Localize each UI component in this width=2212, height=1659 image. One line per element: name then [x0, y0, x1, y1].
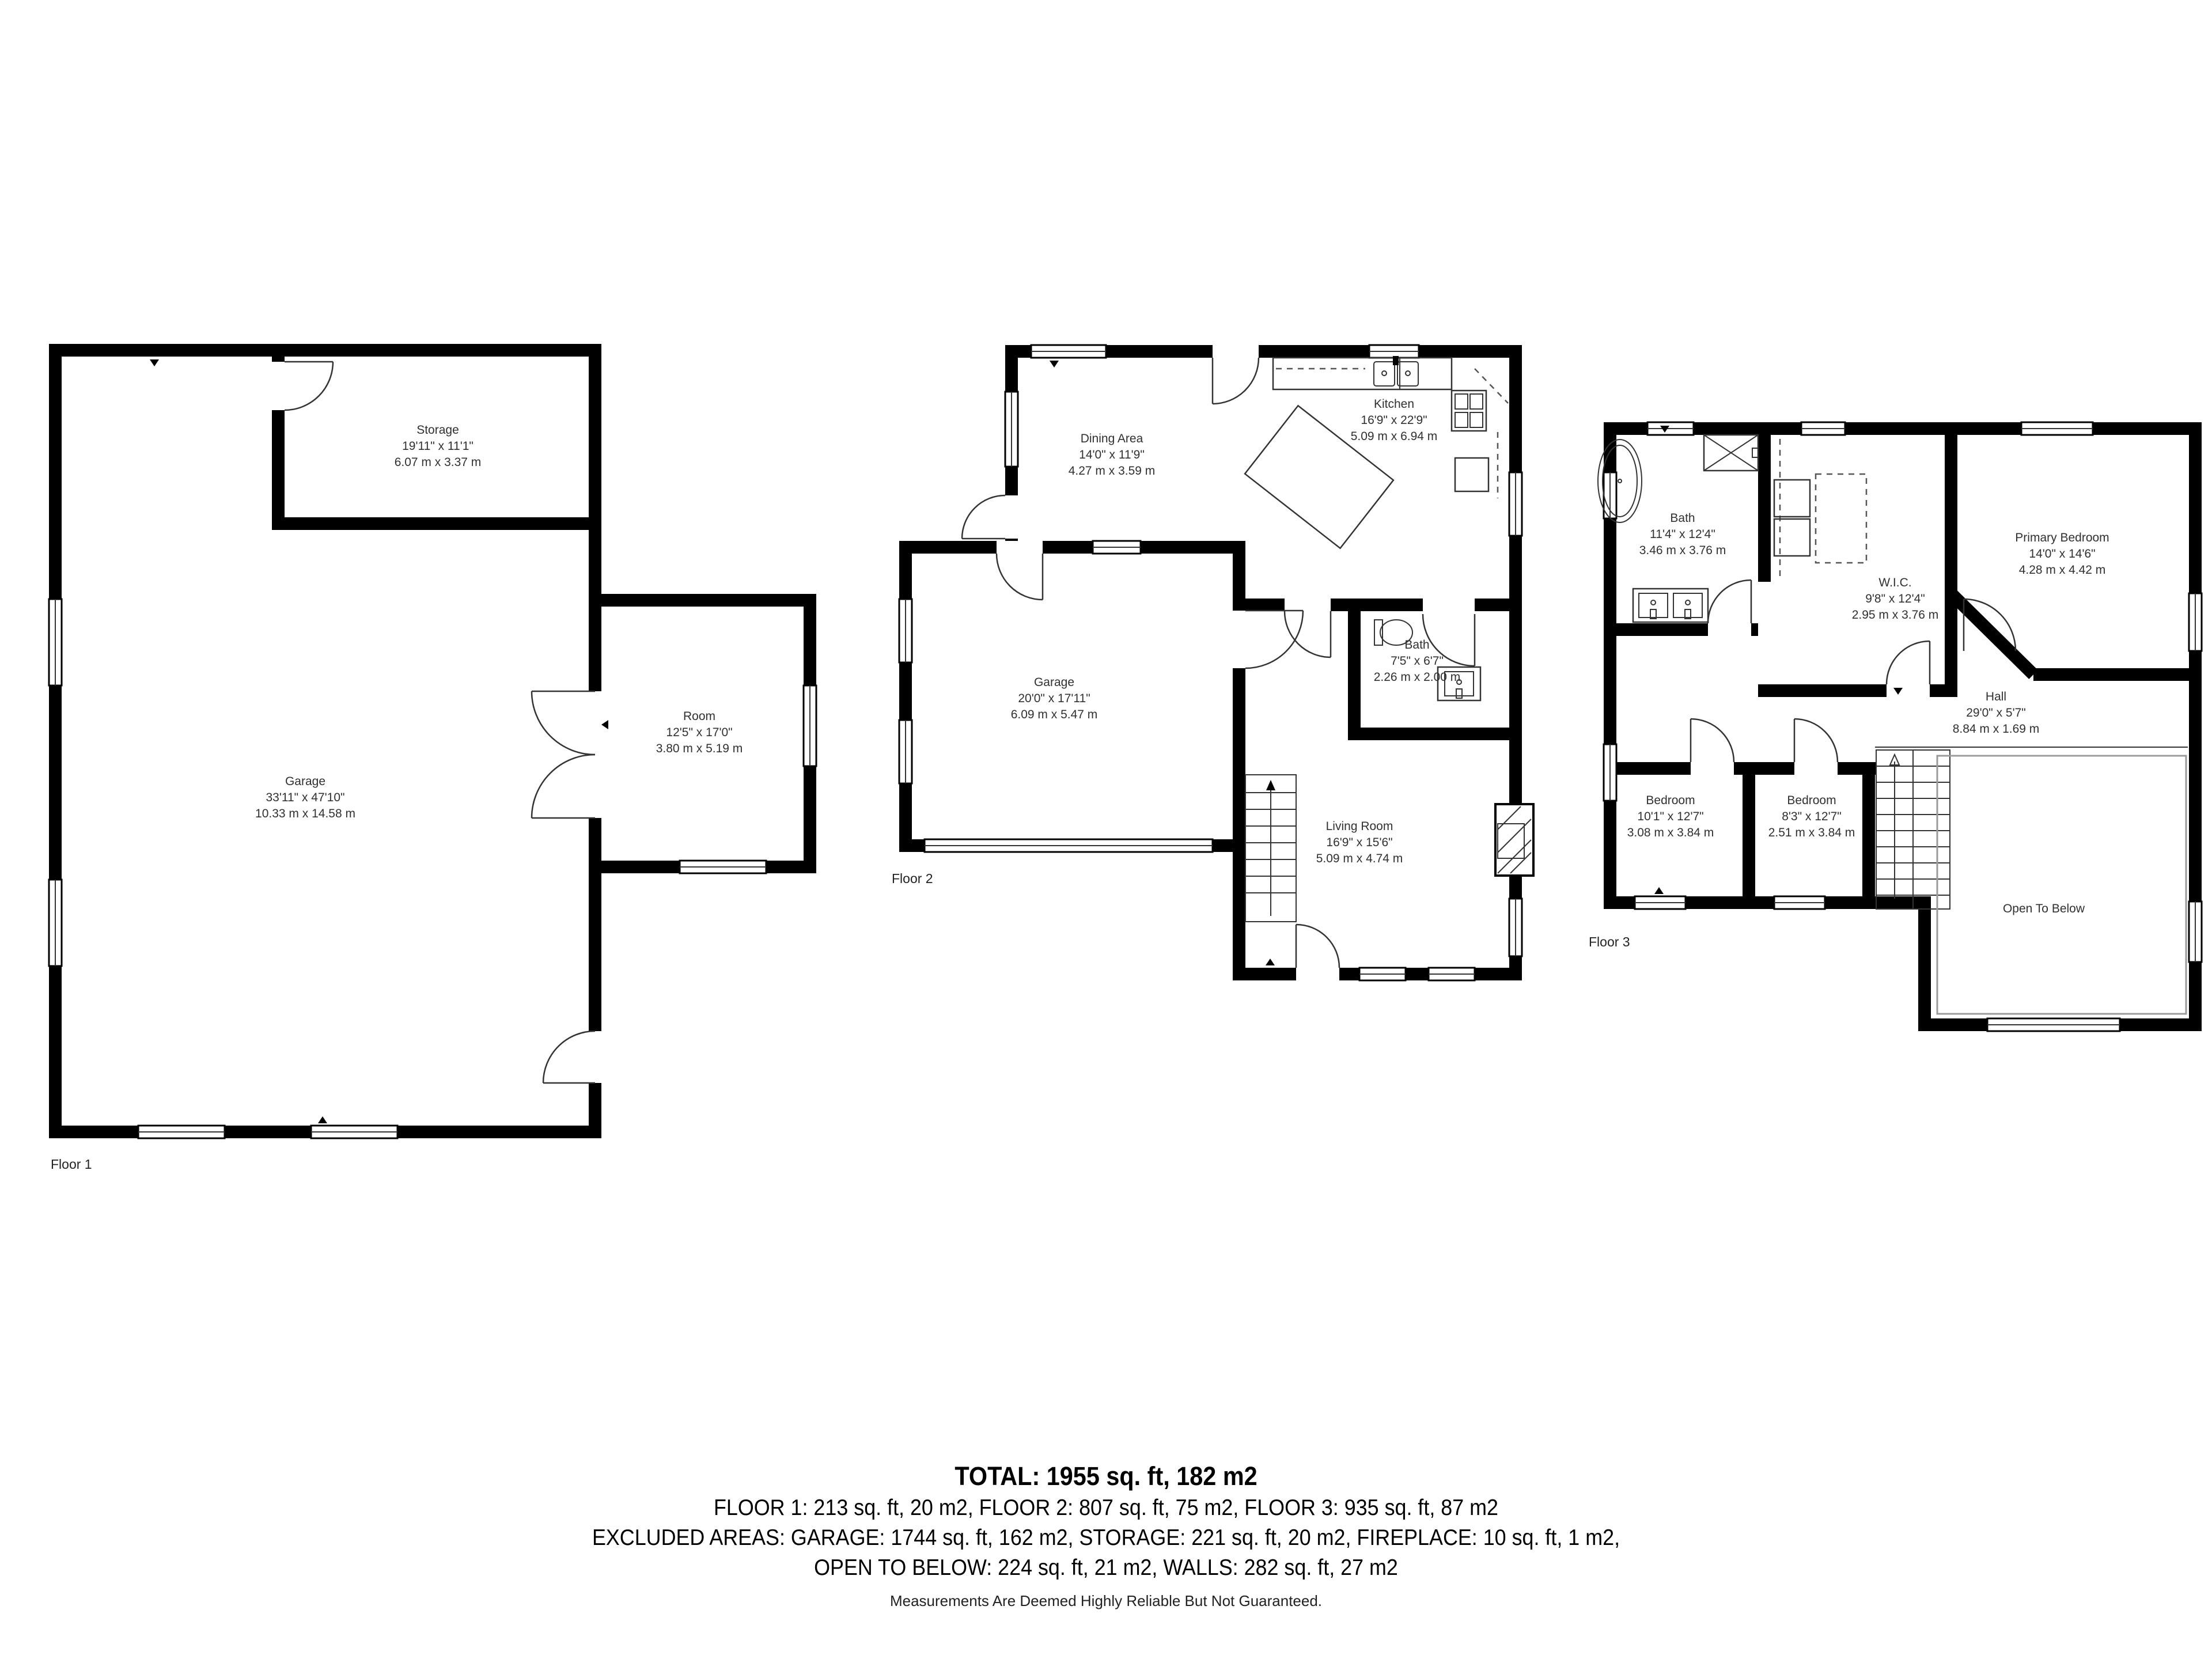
floorplan-page: Storage 19'11" x 11'1" 6.07 m x 3.37 m G…	[0, 0, 2212, 1659]
summary-excluded-1: EXCLUDED AREAS: GARAGE: 1744 sq. ft, 162…	[89, 1523, 2124, 1553]
summary-disclaimer: Measurements Are Deemed Highly Reliable …	[0, 1592, 2212, 1610]
bedroom1-door	[1691, 719, 1734, 762]
floorplan-drawing	[0, 0, 2212, 1659]
wic-door	[1887, 641, 1930, 684]
storage-door	[285, 362, 333, 410]
shower	[1704, 435, 1758, 471]
summary-excluded-2: OPEN TO BELOW: 224 sq. ft, 21 m2, WALLS:…	[89, 1553, 2124, 1583]
dining-side-door	[962, 495, 1005, 539]
room-label-wic: W.I.C. 9'8" x 12'4" 2.95 m x 3.76 m	[1852, 575, 1939, 623]
stove	[1452, 391, 1486, 431]
room-label-garage-f2: Garage 20'0" x 17'11" 6.09 m x 5.47 m	[1011, 675, 1098, 723]
garage-interior-door	[997, 554, 1043, 600]
living-bottom-door	[1296, 925, 1339, 968]
room-label-primary-bedroom: Primary Bedroom 14'0" x 14'6" 4.28 m x 4…	[2015, 530, 2109, 578]
garage-door	[925, 839, 1213, 852]
kitchen-cabinet	[1455, 458, 1488, 491]
room-label-bath-f2: Bath 7'5" x 6'7" 2.26 m x 2.00 m	[1374, 637, 1461, 685]
bath-door-floor3	[1708, 580, 1751, 623]
room-label-bedroom-2: Bedroom 8'3" x 12'7" 2.51 m x 3.84 m	[1768, 793, 1855, 841]
stairs-floor2	[1245, 775, 1296, 922]
floor-1-label: Floor 1	[51, 1157, 92, 1172]
bedroom2-door	[1794, 719, 1838, 762]
room-label-hall: Hall 29'0" x 5'7" 8.84 m x 1.69 m	[1953, 689, 2040, 737]
entry-door	[1213, 358, 1259, 404]
floor-1-windows	[49, 599, 816, 1138]
stairs-floor3	[1876, 750, 1950, 909]
french-doors	[532, 691, 595, 818]
summary-total: TOTAL: 1955 sq. ft, 182 m2	[89, 1460, 2124, 1493]
dining-living-door	[1285, 611, 1331, 657]
room-label-dining: Dining Area 14'0" x 11'9" 4.27 m x 3.59 …	[1069, 431, 1156, 479]
wic-shelves	[1774, 474, 1866, 563]
summary-block: TOTAL: 1955 sq. ft, 182 m2 FLOOR 1: 213 …	[0, 1460, 2212, 1610]
room-label-kitchen: Kitchen 16'9" x 22'9" 5.09 m x 6.94 m	[1351, 396, 1438, 445]
fireplace	[1495, 804, 1533, 876]
room-label-storage: Storage 19'11" x 11'1" 6.07 m x 3.37 m	[395, 422, 482, 471]
room-label-open-to-below: Open To Below	[2003, 901, 2085, 917]
room-label-garage-f1: Garage 33'11" x 47'10" 10.33 m x 14.58 m	[255, 774, 355, 822]
room-label-bath-f3: Bath 11'4" x 12'4" 3.46 m x 3.76 m	[1639, 510, 1726, 559]
room-label-bedroom-1: Bedroom 10'1" x 12'7" 3.08 m x 3.84 m	[1627, 793, 1714, 841]
room-label-living-room: Living Room 16'9" x 15'6" 5.09 m x 4.74 …	[1316, 819, 1403, 867]
kitchen-sink	[1374, 356, 1418, 386]
floor-3-label: Floor 3	[1589, 934, 1630, 950]
exterior-door	[543, 1031, 595, 1083]
floor-2-label: Floor 2	[892, 871, 933, 887]
double-sink-vanity	[1633, 589, 1708, 622]
room-label-room: Room 12'5" x 17'0" 3.80 m x 5.19 m	[656, 709, 743, 757]
summary-floors: FLOOR 1: 213 sq. ft, 20 m2, FLOOR 2: 807…	[89, 1493, 2124, 1523]
